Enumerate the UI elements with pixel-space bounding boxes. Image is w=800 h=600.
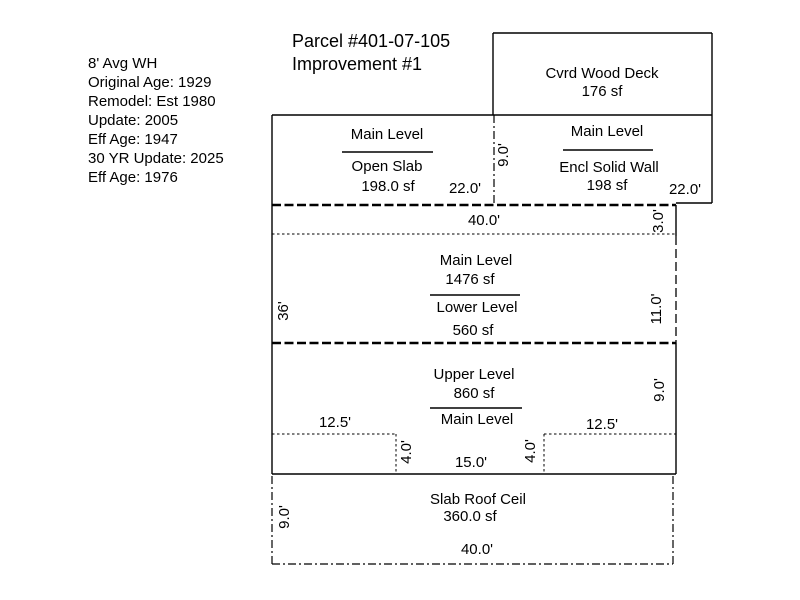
dim-porch-depth: 9.0' [496, 143, 513, 167]
slab-roof-name-label: Slab Roof Ceil [430, 492, 526, 509]
slab-roof-area-label: 360.0 sf [443, 509, 496, 526]
upper-main-level-label: Main Level [441, 412, 514, 429]
encl-wall-label: Encl Solid Wall [559, 160, 658, 177]
dim-mid-right-depth: 11.0' [649, 294, 666, 325]
info-line: Remodel: Est 1980 [88, 92, 224, 111]
property-info-block: 8' Avg WH Original Age: 1929 Remodel: Es… [88, 54, 224, 187]
info-line: Original Age: 1929 [88, 73, 224, 92]
info-line: Eff Age: 1976 [88, 168, 224, 187]
dim-left-height: 36' [276, 301, 293, 321]
dim-notch-left-depth: 4.0' [399, 440, 416, 464]
sketch-canvas: Parcel #401-07-105 Improvement #1 8' Avg… [0, 0, 800, 600]
open-slab-level-label: Main Level [351, 127, 424, 144]
dim-strip-width: 40.0' [468, 213, 500, 230]
deck-name-label: Cvrd Wood Deck [545, 66, 658, 83]
dim-slab-depth: 9.0' [277, 505, 294, 529]
dim-notch-width: 15.0' [455, 455, 487, 472]
open-slab-wall-label: Open Slab [352, 159, 423, 176]
open-slab-area-label: 198.0 sf [361, 179, 414, 196]
lower-level-label: Lower Level [437, 300, 518, 317]
dim-top-right-width: 22.0' [669, 182, 701, 199]
info-line: Update: 2005 [88, 111, 224, 130]
dim-notch-left-width: 12.5' [319, 415, 351, 432]
dim-notch-right-width: 12.5' [586, 417, 618, 434]
main-level-area-label: 1476 sf [445, 272, 494, 289]
encl-area-label: 198 sf [587, 178, 628, 195]
lower-level-area-label: 560 sf [453, 323, 494, 340]
parcel-number: Parcel #401-07-105 [292, 30, 450, 53]
upper-level-label: Upper Level [434, 367, 515, 384]
info-line: Eff Age: 1947 [88, 130, 224, 149]
encl-level-label: Main Level [571, 124, 644, 141]
deck-area-label: 176 sf [582, 84, 623, 101]
dim-strip-depth: 3.0' [651, 209, 668, 233]
parcel-title: Parcel #401-07-105 Improvement #1 [292, 30, 450, 76]
dim-top-left-width: 22.0' [449, 181, 481, 198]
upper-level-area-label: 860 sf [454, 386, 495, 403]
dim-notch-right-depth: 4.0' [523, 439, 540, 463]
main-level-label: Main Level [440, 253, 513, 270]
info-line: 30 YR Update: 2025 [88, 149, 224, 168]
dim-upper-right-depth: 9.0' [652, 378, 669, 402]
info-line: 8' Avg WH [88, 54, 224, 73]
dim-slab-width: 40.0' [461, 542, 493, 559]
improvement-number: Improvement #1 [292, 53, 450, 76]
